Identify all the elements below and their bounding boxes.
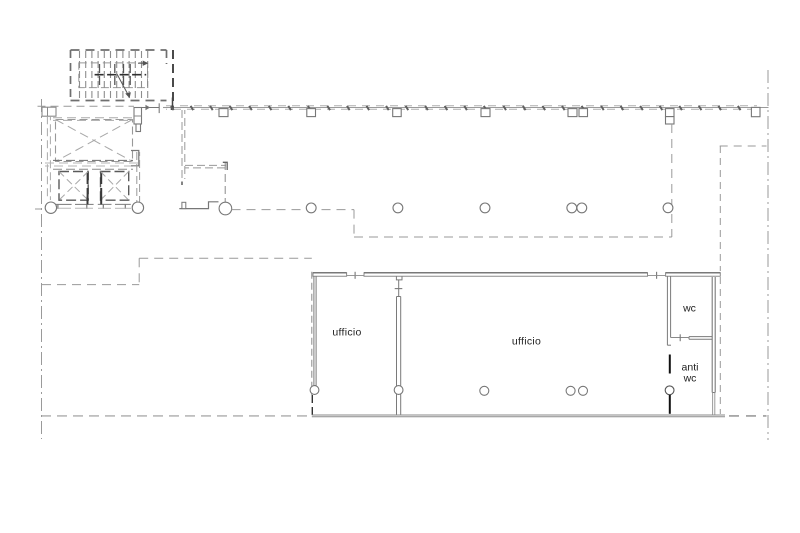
svg-text:ufficio: ufficio (332, 327, 361, 339)
svg-text:wc: wc (682, 303, 696, 315)
svg-text:wc: wc (683, 373, 697, 385)
svg-text:ufficio: ufficio (512, 336, 541, 348)
